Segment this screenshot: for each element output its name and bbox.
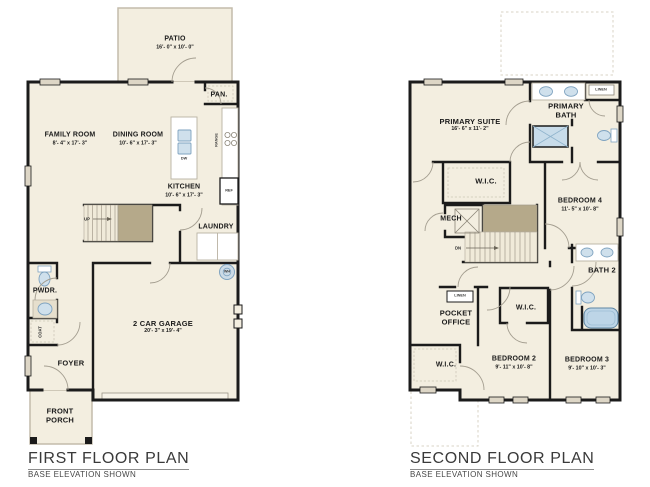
kitchen-dims: 10'- 6" x 17'- 3" [165, 192, 203, 199]
family-room-dims: 8'- 4" x 17'- 3" [45, 140, 96, 147]
front-porch-name: FRONT PORCH [40, 407, 80, 426]
first-floor-subtitle: BASE ELEVATION SHOWN [28, 470, 136, 479]
wic-bedroom2-label: W.I.C. [516, 305, 536, 314]
bedroom3-label: BEDROOM 3 9'- 10" x 10'- 3" [565, 356, 609, 371]
primary-bath-label: PRIMARY BATH [543, 102, 589, 121]
second-floor-subtitle: BASE ELEVATION SHOWN [410, 470, 518, 479]
wic-left-label: W.I.C. [436, 362, 456, 371]
laundry-label: LAUNDRY [198, 224, 233, 233]
pantry-label: PAN. [210, 92, 227, 101]
patio-name: PATIO [156, 35, 194, 44]
pantry-name: PAN. [210, 92, 227, 101]
water-heater-label: WH [224, 270, 230, 275]
mech-label: MECH [440, 216, 461, 225]
dining-room-dims: 10'- 6" x 17'- 3" [113, 140, 163, 147]
bath2-name: BATH 2 [588, 265, 616, 274]
bedroom3-dims: 9'- 10" x 10'- 3" [565, 365, 609, 372]
coat-label: COAT [37, 326, 42, 338]
garage-label: 2 CAR GARAGE 20'- 3" x 19'- 4" [133, 319, 193, 335]
stairs-dn-label: DN [455, 245, 461, 250]
floor-plan-sheet: PATIO 16'- 0" x 10'- 0" PAN. FAMILY ROOM… [0, 0, 650, 487]
bedroom2-name: BEDROOM 2 [492, 355, 536, 364]
kitchen-sink [178, 130, 191, 141]
refrigerator-label: REF [225, 189, 233, 194]
primary-toilet [598, 131, 611, 141]
primary-suite-label: PRIMARY SUITE 16'- 6" x 11'- 2" [440, 117, 501, 133]
powder-toilet [39, 272, 50, 286]
bedroom2-label: BEDROOM 2 9'- 11" x 10'- 8" [492, 355, 536, 370]
dining-room-name: DINING ROOM [113, 131, 163, 140]
front-porch-label: FRONT PORCH [40, 407, 80, 426]
powder-sink [38, 303, 52, 315]
bedroom4-dims: 11'- 5" x 10'- 8" [558, 206, 602, 213]
wic-primary-label: W.I.C. [475, 176, 497, 185]
bedroom2-dims: 9'- 11" x 10'- 8" [492, 364, 536, 371]
primary-bath-name: PRIMARY BATH [543, 102, 589, 121]
dining-room-label: DINING ROOM 10'- 6" x 17'- 3" [113, 131, 163, 146]
foyer-name: FOYER [58, 358, 85, 367]
foyer-label: FOYER [58, 358, 85, 367]
laundry-fixtures [197, 233, 238, 260]
garage-dims: 20'- 3" x 19'- 4" [133, 328, 193, 335]
range-label: RANGE [215, 133, 220, 147]
bedroom4-label: BEDROOM 4 11'- 5" x 10'- 8" [558, 197, 602, 212]
linen-bath-label: LINEN [595, 88, 606, 93]
bath2-label: BATH 2 [588, 265, 616, 274]
pocket-office-label: POCKET OFFICE [433, 309, 479, 328]
stairs-first-floor [84, 205, 152, 241]
primary-suite-dims: 16'- 6" x 11'- 2" [440, 126, 501, 133]
family-room-name: FAMILY ROOM [45, 131, 96, 140]
first-floor-title: FIRST FLOOR PLAN [28, 450, 189, 470]
linen-hall-label: LINEN [454, 294, 465, 299]
wic-bedroom2-name: W.I.C. [516, 305, 536, 314]
patio-roof-outline [501, 12, 613, 75]
bedroom4-name: BEDROOM 4 [558, 197, 602, 206]
wic-left-name: W.I.C. [436, 362, 456, 371]
second-floor-title: SECOND FLOOR PLAN [410, 450, 594, 470]
kitchen-label: KITCHEN 10'- 6" x 17'- 3" [165, 183, 203, 198]
garage-name: 2 CAR GARAGE [133, 319, 193, 328]
patio-dims: 16'- 0" x 10'- 0" [156, 44, 194, 51]
laundry-name: LAUNDRY [198, 224, 233, 233]
stairs-up-label: UP [84, 216, 90, 221]
primary-suite-name: PRIMARY SUITE [440, 117, 501, 126]
pocket-office-name: POCKET OFFICE [433, 309, 479, 328]
dishwasher-label: DW [181, 157, 187, 162]
floor-plan-drawing [0, 0, 650, 487]
second-floor-drawing [410, 12, 623, 446]
powder-name: PWDR. [33, 288, 57, 297]
patio-label: PATIO 16'- 0" x 10'- 0" [156, 35, 194, 50]
powder-label: PWDR. [33, 288, 57, 297]
bedroom3-name: BEDROOM 3 [565, 356, 609, 365]
primary-sink [540, 87, 553, 97]
wic-primary-name: W.I.C. [475, 176, 497, 185]
bath2-sink [581, 248, 593, 257]
kitchen-name: KITCHEN [165, 183, 203, 192]
mech-name: MECH [440, 216, 461, 225]
family-room-label: FAMILY ROOM 8'- 4" x 17'- 3" [45, 131, 96, 146]
bath2-toilet [582, 292, 595, 303]
